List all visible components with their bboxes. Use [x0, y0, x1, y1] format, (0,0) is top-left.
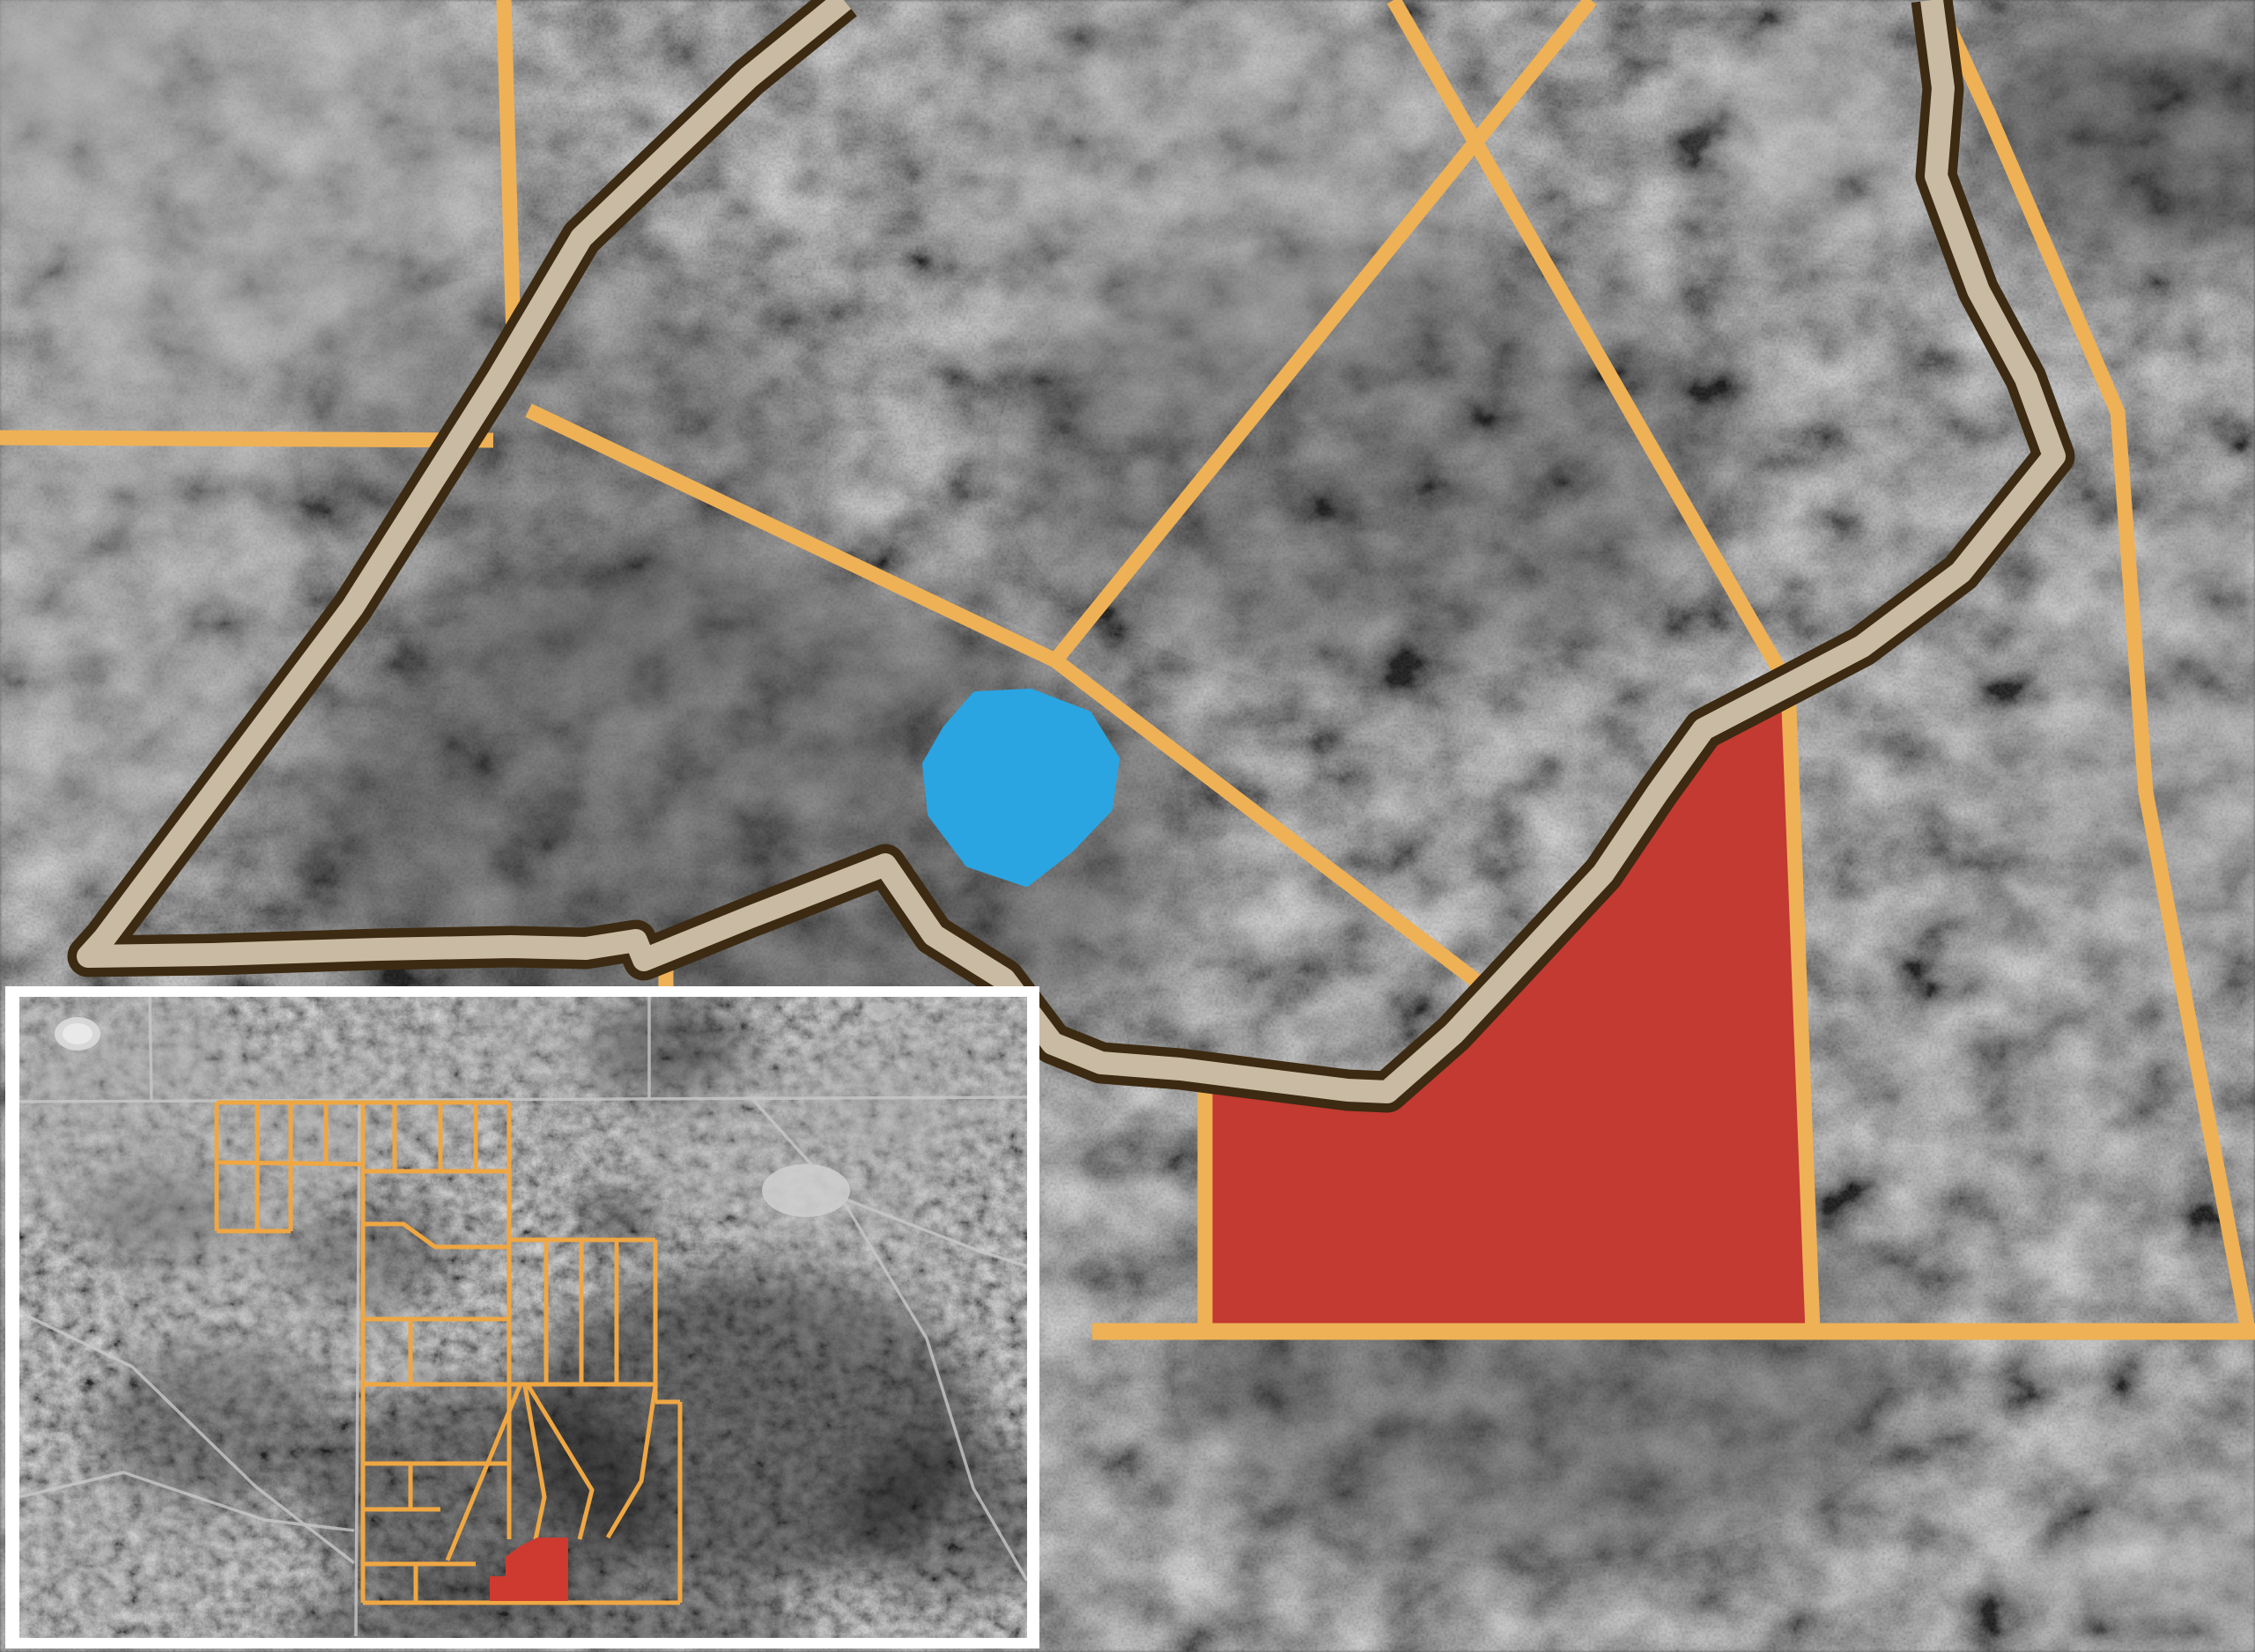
field-light-patch	[1698, 9, 1927, 255]
inset-field-light-patch	[758, 1198, 969, 1356]
map-canvas	[0, 0, 2255, 1652]
plat-map-screenshot	[0, 0, 2255, 1652]
inset-field-light-patch	[0, 1462, 273, 1620]
inset-content	[0, 969, 1057, 1652]
inset-field-light-patch	[810, 1013, 1039, 1154]
boundary-west-horizontal	[0, 438, 493, 440]
inset-forest-shadow-patch	[846, 1435, 1057, 1594]
inset-overview-map	[0, 969, 1057, 1652]
inset-road-v	[150, 997, 152, 1102]
inset-bright-spot	[865, 1002, 900, 1020]
inset-bright-spot	[63, 1023, 92, 1044]
inset-forest-shadow-patch	[577, 1198, 656, 1242]
